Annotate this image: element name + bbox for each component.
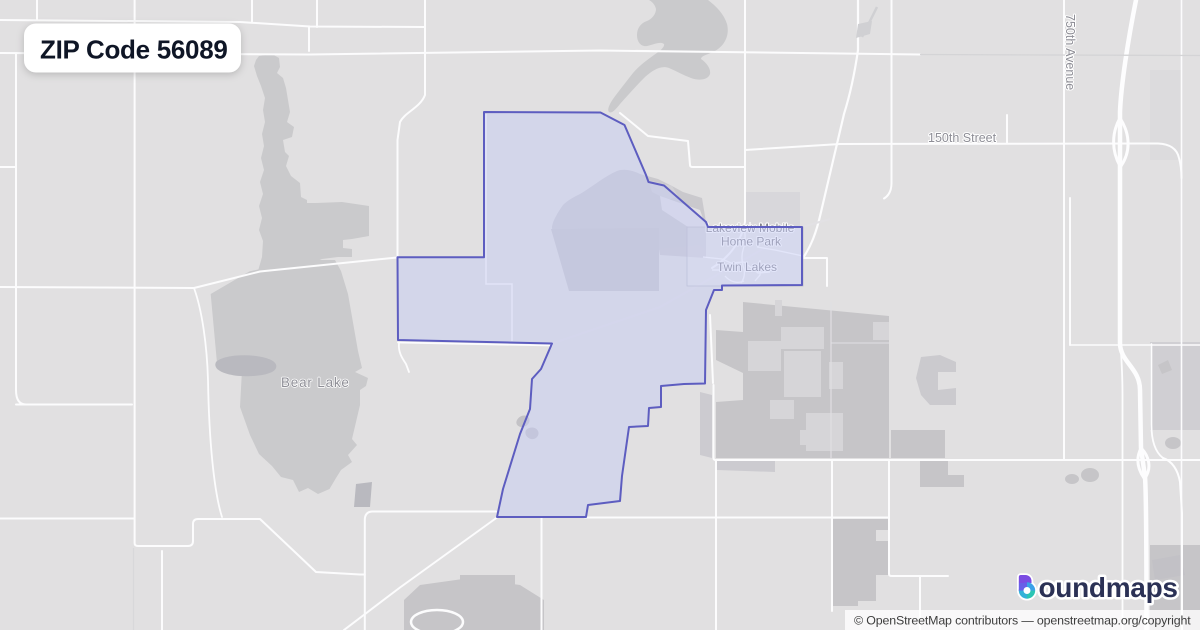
svg-text:oundmaps: oundmaps xyxy=(1039,572,1178,603)
svg-text:ZIP Code 56089: ZIP Code 56089 xyxy=(40,35,228,65)
svg-text:150th Street: 150th Street xyxy=(928,131,997,145)
svg-text:© OpenStreetMap contributors —: © OpenStreetMap contributors — openstree… xyxy=(854,614,1191,628)
svg-text:750th Avenue: 750th Avenue xyxy=(1063,14,1077,90)
svg-text:Bear Lake: Bear Lake xyxy=(281,375,350,390)
